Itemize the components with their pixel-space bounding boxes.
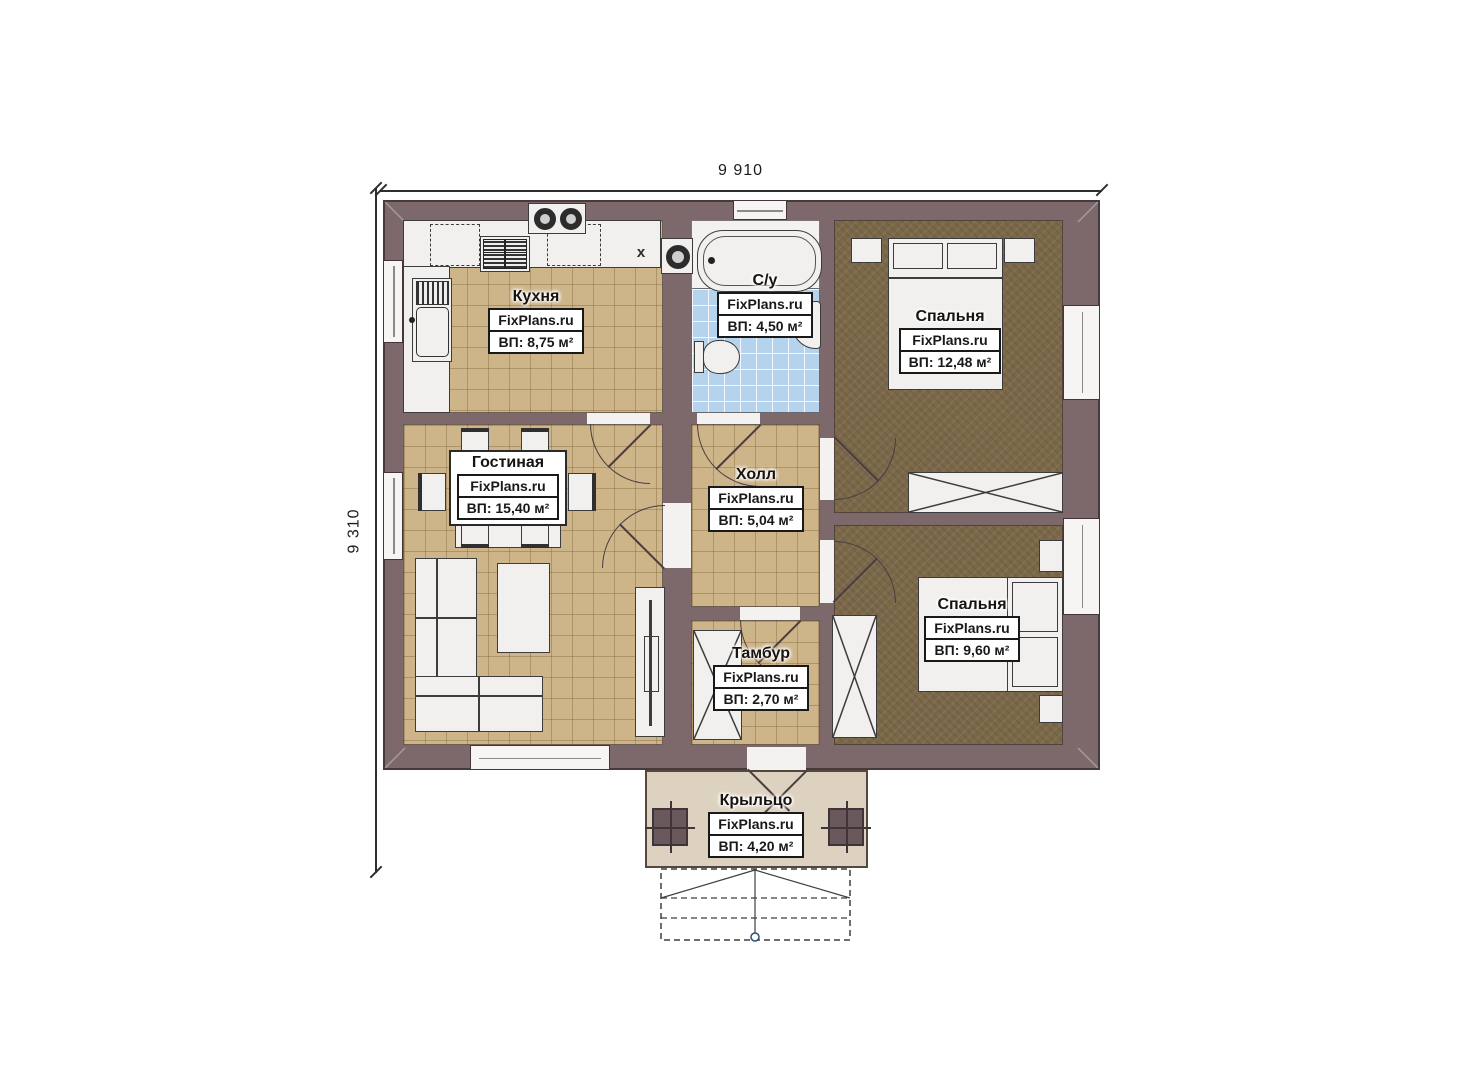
watermark: FixPlans.ru [490, 310, 581, 330]
wardrobe [908, 472, 1063, 513]
room-area: ВП: 12,48 м² [901, 350, 1000, 372]
room-name: Спальня [937, 596, 1006, 614]
sink-drainer [416, 281, 449, 305]
faucet-dot [409, 317, 415, 323]
room-area: ВП: 5,04 м² [710, 508, 801, 530]
kitchen-label: Кухня FixPlans.ru ВП: 8,75 м² [470, 288, 602, 354]
dimension-height-line [375, 188, 377, 873]
room-area: ВП: 4,50 м² [719, 314, 810, 336]
chair [568, 473, 596, 511]
dimension-width-line [380, 190, 1102, 192]
living-room-window-bottom [470, 745, 610, 770]
coffee-table [497, 563, 550, 653]
room-name: Крыльцо [720, 792, 793, 810]
sink-marker: x [630, 244, 652, 261]
room-name: Холл [736, 466, 776, 484]
bedroom1-window [1063, 305, 1100, 400]
wardrobe [832, 615, 877, 738]
wall-bedroom1-bedroom2 [834, 513, 1063, 525]
dimension-height-label: 9 310 [346, 508, 364, 553]
stove [480, 236, 530, 272]
porch-post [828, 808, 864, 846]
bedroom1-label: Спальня FixPlans.ru ВП: 12,48 м² [890, 308, 1010, 374]
door-opening-kitchen [587, 413, 650, 424]
watermark: FixPlans.ru [926, 618, 1017, 638]
toilet-bowl [703, 340, 740, 374]
chair [418, 473, 446, 511]
room-name: Кухня [513, 288, 560, 306]
door-opening-bathroom [697, 413, 760, 424]
room-area: ВП: 4,20 м² [710, 834, 801, 856]
watermark: FixPlans.ru [715, 667, 806, 687]
kitchen-sink [412, 278, 452, 362]
porch-post [652, 808, 688, 846]
kitchen-upper-cabinet [430, 224, 480, 266]
bedroom2-window [1063, 518, 1100, 615]
bathroom-label: С/у FixPlans.ru ВП: 4,50 м² [700, 272, 830, 338]
pillow [947, 243, 997, 269]
dimension-width-label: 9 910 [718, 162, 763, 180]
nightstand [1039, 540, 1063, 572]
tv-cabinet [635, 587, 665, 737]
room-name: Гостиная [472, 454, 544, 472]
watermark: FixPlans.ru [710, 488, 801, 508]
living-room-window-left [383, 472, 403, 560]
wall-kitchen-hall [663, 220, 691, 745]
room-name: Спальня [915, 308, 984, 326]
pillow [893, 243, 943, 269]
watermark: FixPlans.ru [719, 294, 810, 314]
sofa-section-horizontal [415, 676, 543, 732]
watermark: FixPlans.ru [459, 476, 558, 496]
sink-basin [416, 307, 449, 357]
door-opening-bedroom1 [820, 438, 834, 500]
hall-label: Холл FixPlans.ru ВП: 5,04 м² [694, 466, 818, 532]
bathroom-window [733, 200, 787, 220]
faucet-dot [708, 257, 715, 264]
living-room-label: Гостиная FixPlans.ru ВП: 15,40 м² [444, 450, 572, 526]
cooktop [528, 203, 586, 234]
room-area: ВП: 2,70 м² [715, 687, 806, 709]
room-name: Тамбур [732, 645, 790, 663]
watermark: FixPlans.ru [710, 814, 801, 834]
room-area: ВП: 9,60 м² [926, 638, 1017, 660]
porch-label: Крыльцо FixPlans.ru ВП: 4,20 м² [690, 792, 822, 858]
room-name: С/у [753, 272, 778, 290]
bedroom2-label: Спальня FixPlans.ru ВП: 9,60 м² [913, 596, 1031, 662]
vestibule-label: Тамбур FixPlans.ru ВП: 2,70 м² [700, 645, 822, 711]
door-opening-living-hall [663, 503, 691, 568]
kitchen-window [383, 260, 403, 343]
nightstand [851, 238, 882, 263]
door-opening-vestibule [740, 607, 800, 620]
watermark: FixPlans.ru [901, 330, 1000, 350]
floor-plan-page: 9 910 9 310 [0, 0, 1473, 1080]
nightstand [1039, 695, 1063, 723]
boiler [661, 238, 693, 274]
door-opening-bedroom2 [820, 540, 834, 603]
porch-steps [660, 868, 851, 942]
room-area: ВП: 8,75 м² [490, 330, 581, 352]
nightstand [1004, 238, 1035, 263]
room-area: ВП: 15,40 м² [459, 496, 558, 518]
door-opening-entrance [747, 747, 806, 770]
